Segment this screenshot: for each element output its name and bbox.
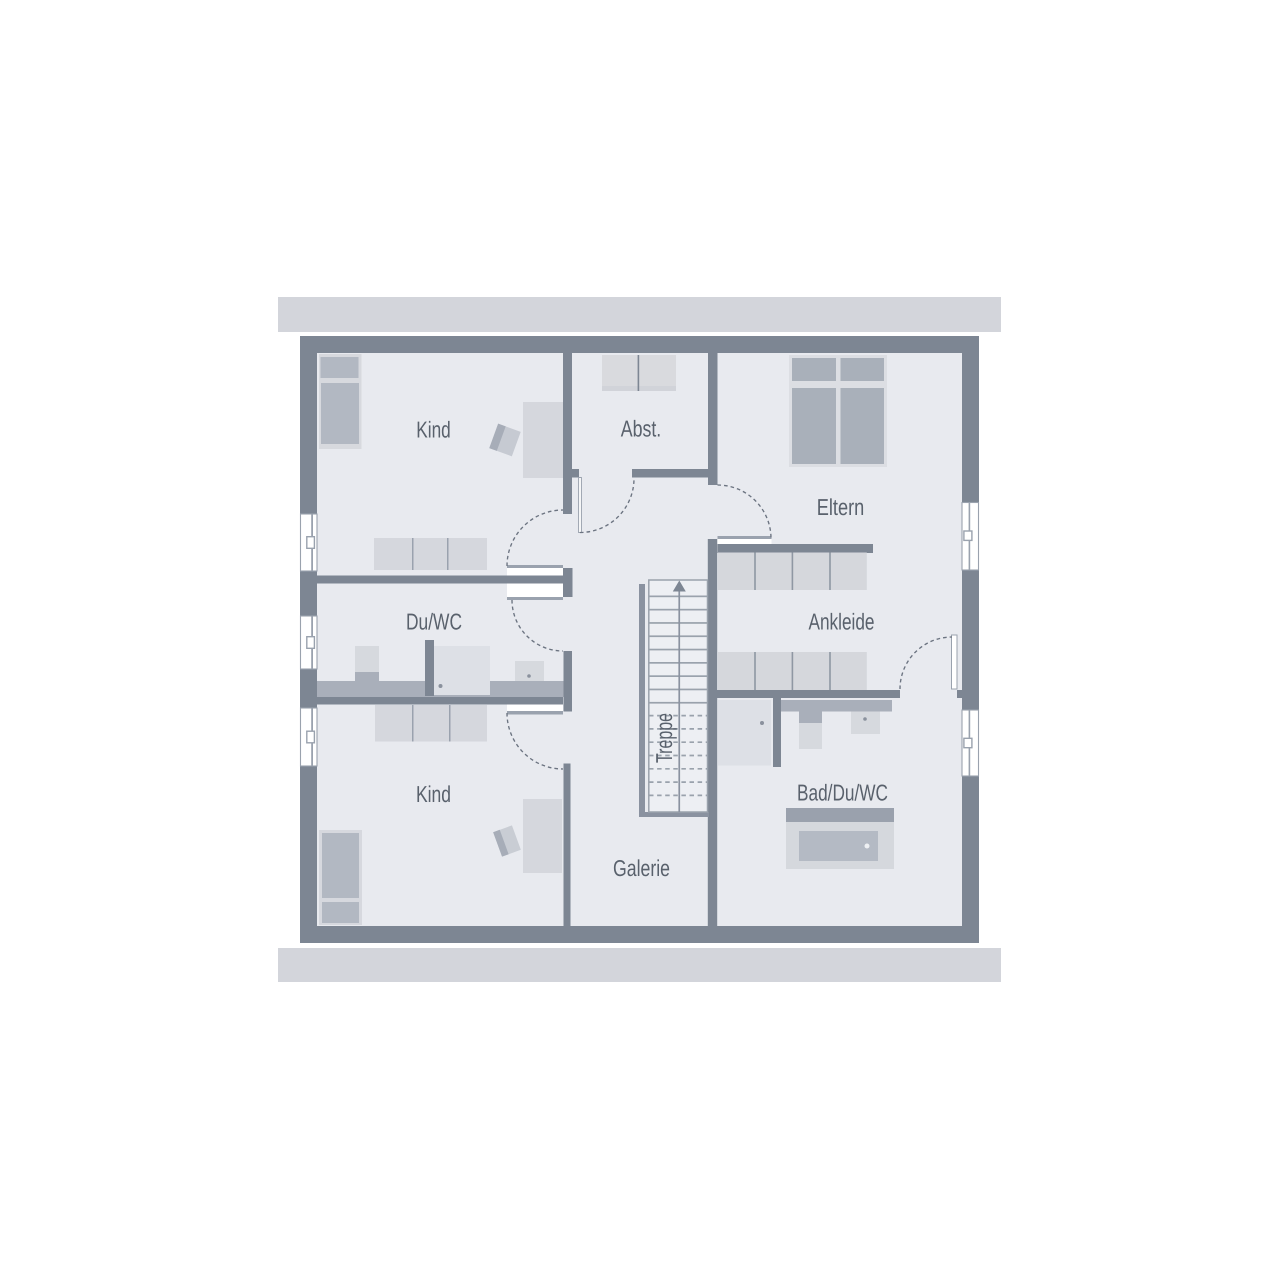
svg-text:Du/WC: Du/WC: [406, 609, 462, 635]
svg-text:Bad/Du/WC: Bad/Du/WC: [797, 780, 888, 806]
svg-text:Abst.: Abst.: [621, 416, 662, 442]
svg-text:Galerie: Galerie: [613, 855, 670, 881]
svg-text:Ankleide: Ankleide: [809, 609, 875, 635]
svg-text:Eltern: Eltern: [817, 494, 865, 520]
svg-text:Kind: Kind: [416, 781, 451, 807]
svg-text:Kind: Kind: [416, 417, 451, 443]
svg-text:Treppe: Treppe: [651, 713, 677, 763]
